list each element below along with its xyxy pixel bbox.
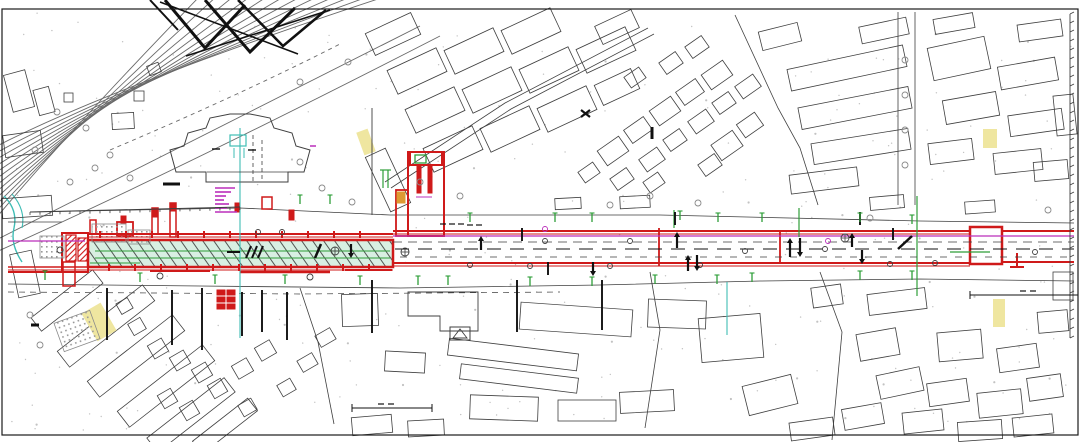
site-plan-svg <box>0 0 1080 442</box>
site-plan-page <box>0 0 1080 442</box>
